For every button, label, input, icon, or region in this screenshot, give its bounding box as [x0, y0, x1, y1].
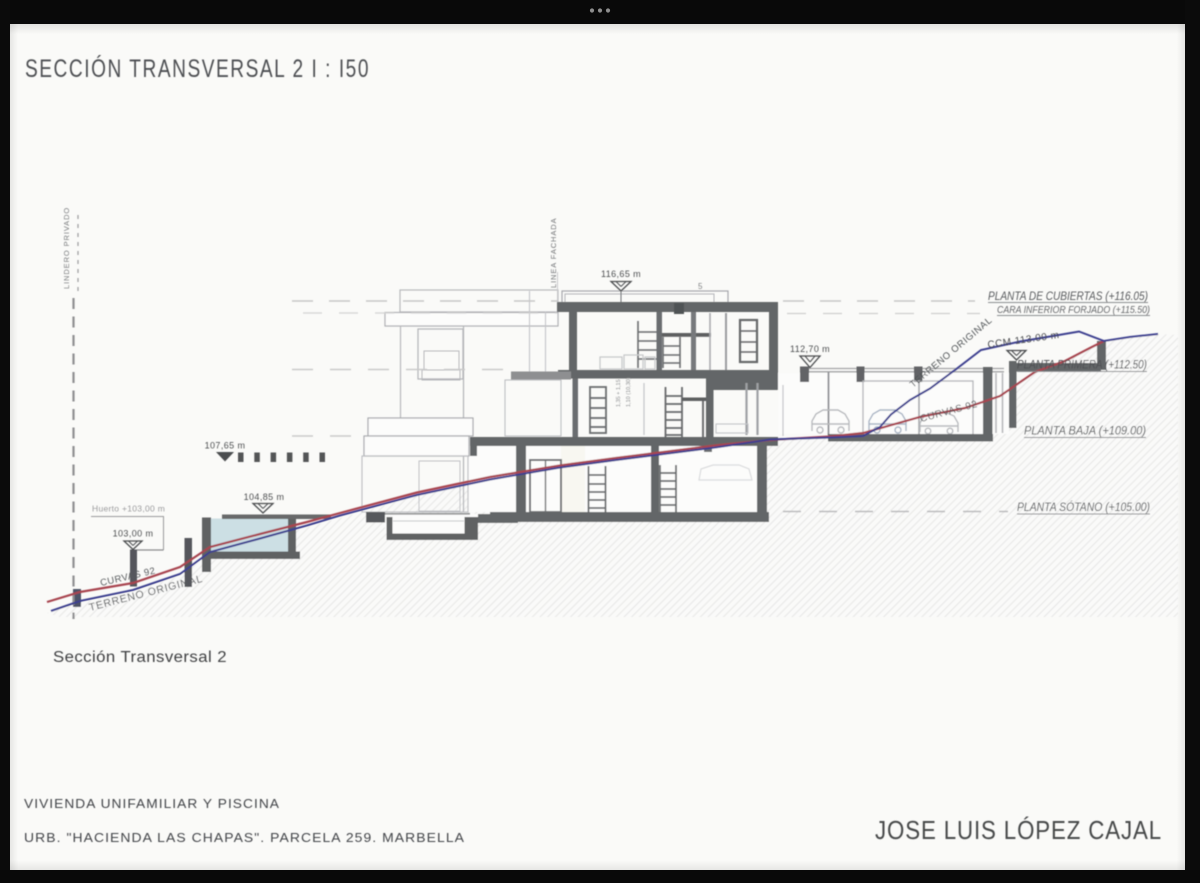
- svg-text:Sección Transversal 2: Sección Transversal 2: [53, 649, 227, 666]
- svg-text:CARA INFERIOR FORJADO (+115.50: CARA INFERIOR FORJADO (+115.50): [997, 304, 1150, 316]
- svg-text:112,70 m: 112,70 m: [790, 344, 830, 354]
- svg-text:PLANTA SÓTANO (+105.00): PLANTA SÓTANO (+105.00): [1017, 499, 1150, 514]
- svg-text:104,85 m: 104,85 m: [244, 492, 285, 502]
- svg-text:5: 5: [698, 282, 703, 291]
- svg-text:JOSE LUIS LÓPEZ CAJAL: JOSE LUIS LÓPEZ CAJAL: [875, 815, 1162, 845]
- svg-text:103,00 m: 103,00 m: [113, 529, 154, 539]
- svg-text:PLANTA BAJA (+109.00): PLANTA BAJA (+109.00): [1024, 424, 1146, 438]
- svg-text:LINEA FACHADA: LINEA FACHADA: [549, 218, 558, 288]
- svg-text:URB. "HACIENDA LAS CHAPAS". PA: URB. "HACIENDA LAS CHAPAS". PARCELA 259.…: [24, 830, 465, 845]
- svg-text:PLANTA PRIMERA (+112.50): PLANTA PRIMERA (+112.50): [1017, 358, 1147, 372]
- svg-text:116,65 m: 116,65 m: [601, 269, 641, 279]
- svg-text:PLANTA DE CUBIERTAS (+116.05): PLANTA DE CUBIERTAS (+116.05): [988, 289, 1148, 303]
- svg-text:1,35 + 1,15: 1,35 + 1,15: [616, 379, 622, 407]
- svg-text:1,10 (10,30): 1,10 (10,30): [626, 377, 632, 407]
- svg-text:LINDERO PRIVADO: LINDERO PRIVADO: [62, 207, 71, 289]
- svg-text:107,65 m: 107,65 m: [205, 441, 246, 451]
- svg-text:Huerto +103,00 m: Huerto +103,00 m: [92, 504, 165, 514]
- svg-text:SECCIÓN TRANSVERSAL 2 I : I50: SECCIÓN TRANSVERSAL 2 I : I50: [25, 54, 370, 83]
- svg-text:VIVIENDA UNIFAMILIAR Y PISCINA: VIVIENDA UNIFAMILIAR Y PISCINA: [24, 796, 280, 811]
